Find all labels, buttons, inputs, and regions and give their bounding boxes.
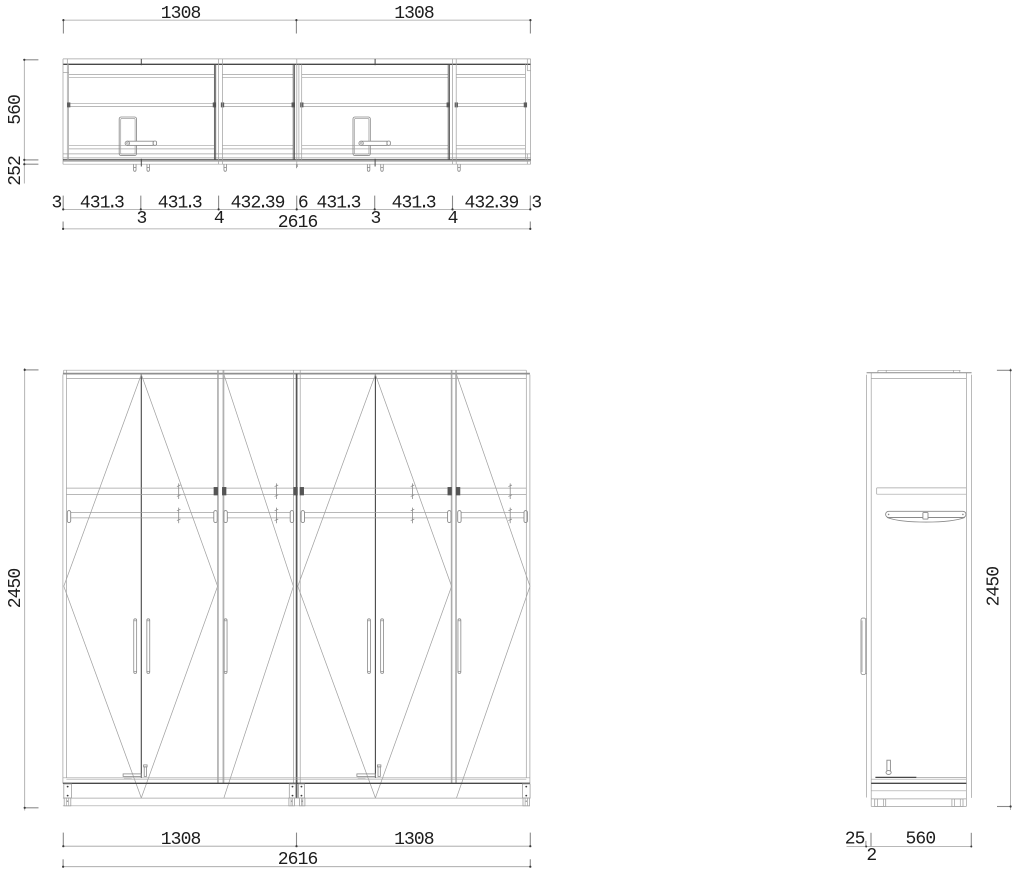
svg-text:2616: 2616 <box>278 213 318 233</box>
svg-text:1308: 1308 <box>161 830 201 850</box>
svg-text:6: 6 <box>298 193 308 213</box>
svg-text:4: 4 <box>448 209 458 229</box>
svg-text:4: 4 <box>214 209 224 229</box>
svg-text:431.3: 431.3 <box>80 193 124 213</box>
svg-text:432.39: 432.39 <box>464 193 518 213</box>
svg-text:2450: 2450 <box>985 567 1005 607</box>
svg-text:3: 3 <box>371 209 381 229</box>
svg-text:432.39: 432.39 <box>231 193 285 213</box>
svg-text:431.3: 431.3 <box>317 193 361 213</box>
svg-text:1308: 1308 <box>394 830 434 850</box>
svg-text:560: 560 <box>6 95 26 125</box>
svg-text:25: 25 <box>845 830 865 850</box>
svg-text:2616: 2616 <box>278 850 318 870</box>
svg-text:1308: 1308 <box>394 4 434 24</box>
svg-text:2450: 2450 <box>6 569 26 609</box>
svg-text:3: 3 <box>137 209 147 229</box>
svg-text:431.3: 431.3 <box>158 193 202 213</box>
svg-text:252: 252 <box>6 156 26 186</box>
svg-text:3: 3 <box>52 193 62 213</box>
svg-text:3: 3 <box>531 193 541 213</box>
svg-text:1308: 1308 <box>161 4 201 24</box>
svg-text:431.3: 431.3 <box>392 193 436 213</box>
svg-text:560: 560 <box>906 830 936 850</box>
svg-text:2: 2 <box>866 846 876 866</box>
